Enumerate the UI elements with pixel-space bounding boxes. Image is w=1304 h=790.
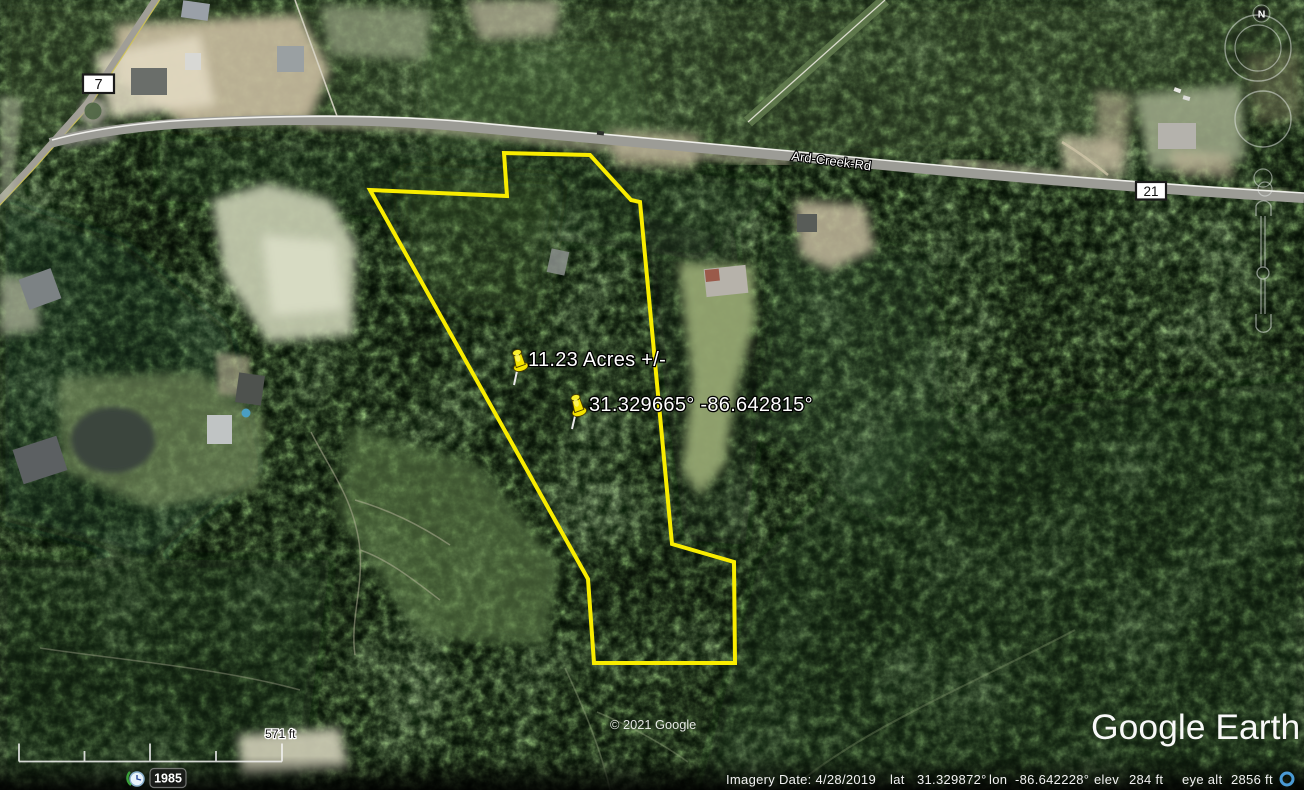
svg-text:11.23 Acres +/-: 11.23 Acres +/- [528, 349, 666, 371]
svg-text:lon: lon [989, 772, 1007, 787]
svg-text:eye alt: eye alt [1182, 772, 1222, 787]
svg-text:© 2021 Google: © 2021 Google [610, 717, 696, 732]
svg-text:31.329872°: 31.329872° [917, 772, 987, 787]
svg-text:7: 7 [94, 77, 102, 93]
svg-text:1985: 1985 [154, 772, 182, 786]
svg-text:-86.642228°: -86.642228° [1015, 772, 1089, 787]
svg-text:Google Earth: Google Earth [1091, 707, 1300, 747]
svg-text:Imagery Date: 4/28/2019: Imagery Date: 4/28/2019 [726, 772, 876, 787]
svg-text:elev: elev [1094, 772, 1119, 787]
svg-text:31.329665° -86.642815°: 31.329665° -86.642815° [589, 394, 813, 416]
svg-text:2856 ft: 2856 ft [1231, 772, 1273, 787]
svg-text:21: 21 [1143, 184, 1158, 199]
svg-text:571 ft: 571 ft [265, 727, 296, 741]
svg-text:284 ft: 284 ft [1129, 772, 1163, 787]
svg-text:lat: lat [890, 772, 905, 787]
